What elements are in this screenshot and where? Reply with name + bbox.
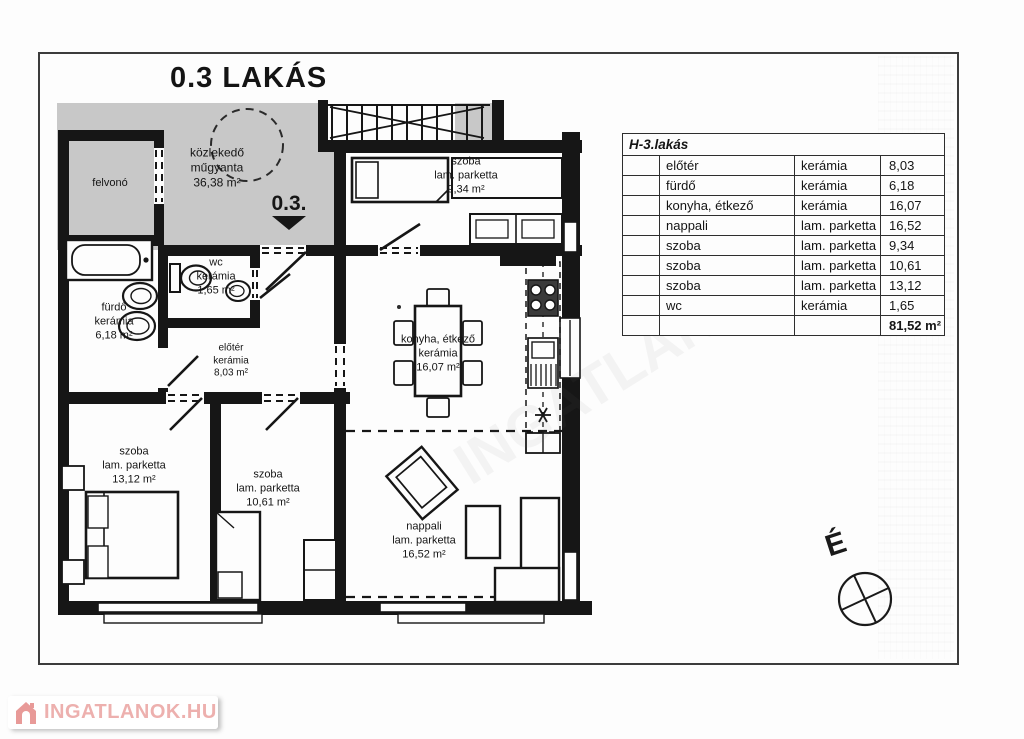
sink-icon bbox=[528, 338, 558, 388]
table-row: wc kerámia1,65 bbox=[623, 296, 945, 316]
watermark: INGATLANOK.HU bbox=[8, 696, 218, 729]
table-row: szoba lam. parketta9,34 bbox=[623, 236, 945, 256]
unit-arrow-icon bbox=[272, 216, 306, 230]
room-label-kozlekedo: közlekedő műgyanta 36,38 m² bbox=[190, 146, 244, 191]
table-row: nappali lam. parketta16,52 bbox=[623, 216, 945, 236]
side-cabinet bbox=[526, 433, 560, 453]
coffee-table bbox=[466, 506, 500, 558]
room-label-furdo: fürdő kerámia 6,18 m² bbox=[94, 301, 133, 342]
appliance-icon bbox=[535, 408, 551, 422]
armchair bbox=[386, 447, 457, 519]
room-label-konyha: konyha, étkező kerámia 16,07 m² bbox=[401, 333, 475, 374]
table-row: konyha, étkező kerámia16,07 bbox=[623, 196, 945, 216]
area-table-title: H-3.lakás bbox=[623, 134, 945, 156]
room-label-felvono: felvonó bbox=[92, 177, 127, 191]
bathtub bbox=[66, 240, 152, 280]
stove-icon bbox=[528, 280, 558, 316]
room-label-szoba-934: szoba lam. parketta 9,34 m² bbox=[434, 155, 498, 196]
room-label-nappali: nappali lam. parketta 16,52 m² bbox=[392, 520, 456, 561]
watermark-label: INGATLANOK.HU bbox=[44, 701, 217, 724]
house-icon bbox=[14, 701, 38, 725]
compass-icon bbox=[830, 564, 899, 633]
room-label-eloter: előtér kerámia 8,03 m² bbox=[213, 342, 249, 380]
scan-speck bbox=[397, 305, 401, 309]
table-row: szoba lam. parketta13,12 bbox=[623, 276, 945, 296]
table-row: fürdő kerámia6,18 bbox=[623, 176, 945, 196]
plan-title: 0.3 LAKÁS bbox=[170, 62, 327, 95]
table-row: előtér kerámia 8,03 bbox=[623, 156, 945, 176]
room-label-wc: wc kerámia 1,65 m² bbox=[196, 256, 235, 297]
table-total-row: 81,52 m² bbox=[623, 316, 945, 336]
room-label-szoba-1312: szoba lam. parketta 13,12 m² bbox=[102, 445, 166, 486]
furniture-szoba-1061 bbox=[216, 512, 336, 600]
table-total-value: 81,52 m² bbox=[881, 316, 945, 336]
floor-plan-drawing bbox=[0, 0, 1024, 739]
kitchen-counter bbox=[526, 262, 560, 432]
sofa bbox=[495, 498, 559, 602]
area-table-header: H-3.lakás bbox=[623, 134, 945, 156]
table-row: szoba lam. parketta10,61 bbox=[623, 256, 945, 276]
scanned-floor-plan-page: INGATLANOK.HU bbox=[0, 0, 1024, 739]
unit-number-label: 0.3. bbox=[271, 192, 306, 216]
room-label-szoba-1061: szoba lam. parketta 10,61 m² bbox=[236, 468, 300, 509]
area-table: H-3.lakás előtér kerámia 8,03 fürdő kerá… bbox=[622, 133, 945, 336]
